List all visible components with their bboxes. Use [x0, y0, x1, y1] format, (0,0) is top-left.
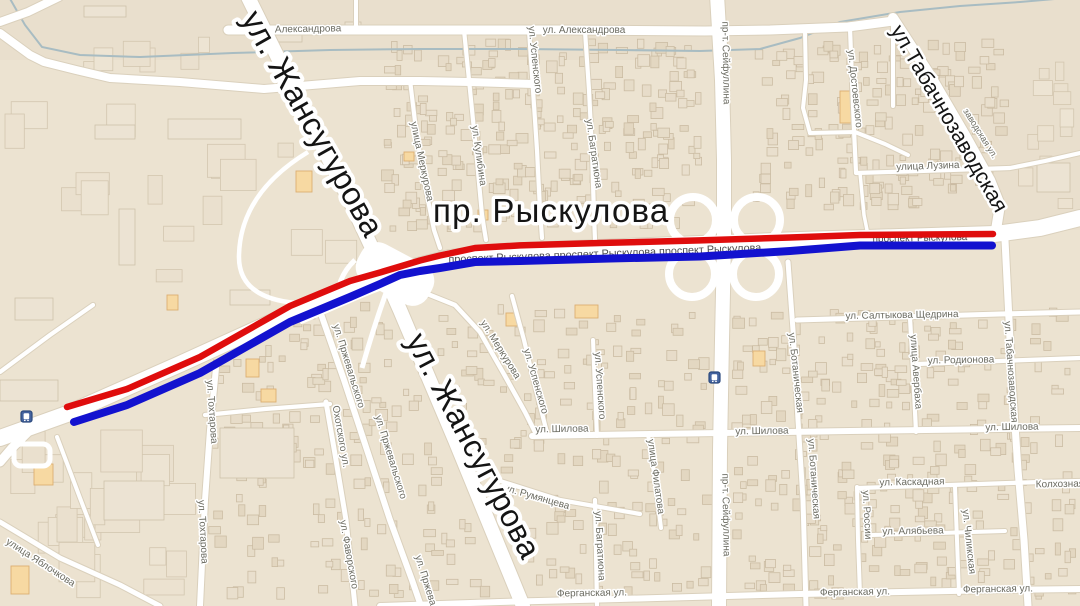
svg-text:ул. Алябьева: ул. Алябьева	[882, 524, 944, 537]
svg-text:ул. Каскадная: ул. Каскадная	[879, 476, 944, 488]
svg-text:улица Лузина: улица Лузина	[896, 160, 960, 173]
svg-text:пр-т. Сейфуллина: пр-т. Сейфуллина	[719, 21, 732, 105]
svg-text:пр. Рыскулова: пр. Рыскулова	[433, 192, 669, 229]
svg-text:ул. Шилова: ул. Шилова	[535, 424, 589, 436]
svg-text:ул. Александрова: ул. Александрова	[543, 25, 626, 36]
svg-text:ул. Шилова: ул. Шилова	[985, 422, 1039, 434]
svg-text:Колхозная: Колхозная	[1036, 479, 1080, 491]
svg-text:ул. Шилова: ул. Шилова	[735, 426, 789, 438]
svg-text:ул. Родионова: ул. Родионова	[928, 354, 995, 366]
svg-text:Ферганская ул.: Ферганская ул.	[557, 587, 627, 599]
svg-text:Ферганская ул.: Ферганская ул.	[963, 583, 1033, 595]
svg-text:Ферганская ул.: Ферганская ул.	[820, 586, 890, 598]
svg-text:ул. Салтыкова Щедрина: ул. Салтыкова Щедрина	[845, 309, 959, 322]
svg-text:пр-т. Сейфуллина: пр-т. Сейфуллина	[719, 473, 732, 557]
